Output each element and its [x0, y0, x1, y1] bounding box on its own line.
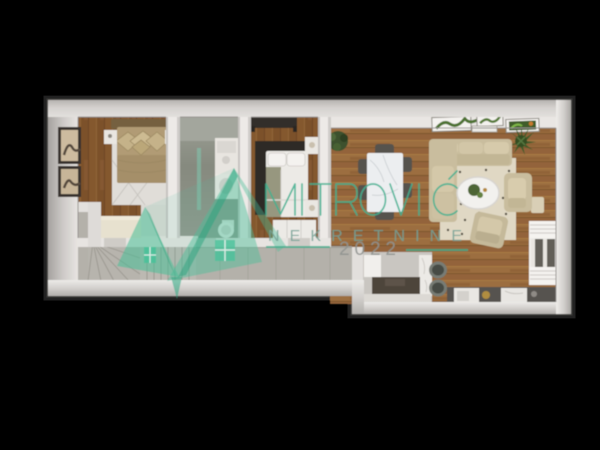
svg-text:2022: 2022 [339, 239, 403, 260]
